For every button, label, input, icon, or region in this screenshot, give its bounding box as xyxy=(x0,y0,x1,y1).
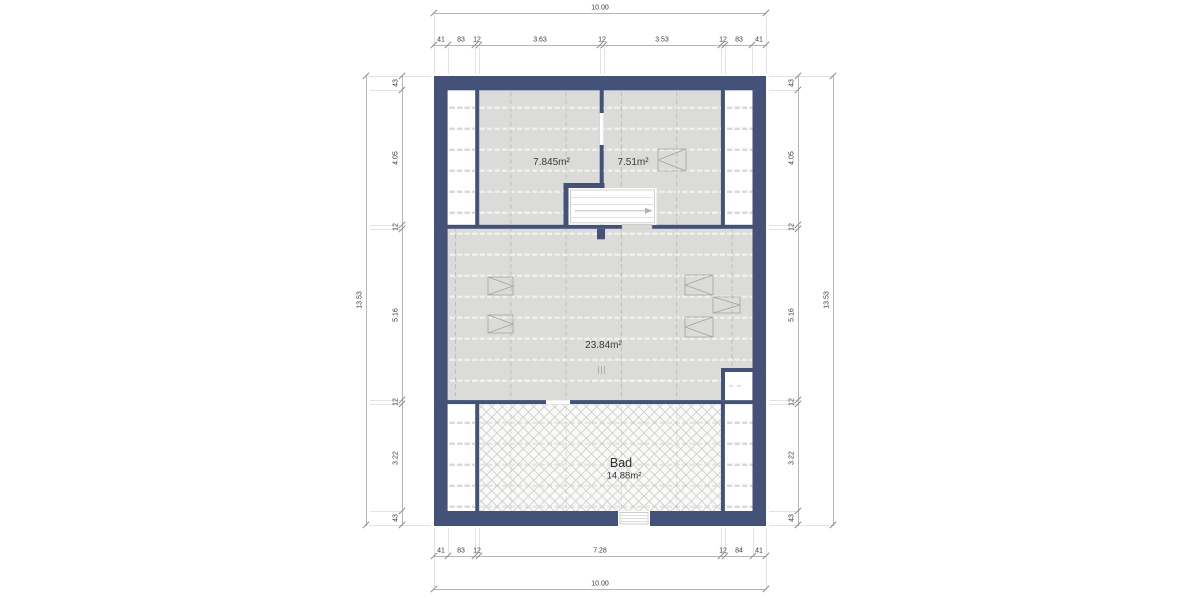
dimension-line xyxy=(434,589,766,590)
extension-line xyxy=(604,47,605,74)
extension-line xyxy=(752,47,753,74)
extension-line xyxy=(753,528,754,554)
extension-line xyxy=(721,47,722,74)
extension-line xyxy=(370,90,400,91)
dimension-line xyxy=(402,76,403,526)
stairwell-opening xyxy=(622,225,652,229)
dim-label: 13.53 xyxy=(357,291,364,309)
dimension-line xyxy=(798,76,799,526)
knee-strip-bad-left xyxy=(448,404,476,511)
dim-label: 43 xyxy=(789,79,796,87)
dim-label: 4.05 xyxy=(789,151,796,165)
room-area-label: 14.88m² xyxy=(607,471,642,482)
room-name-label: Bad xyxy=(610,456,632,470)
dim-label: 12 xyxy=(393,398,400,406)
dim-label: 3.63 xyxy=(533,37,547,44)
dim-label: 83 xyxy=(457,37,465,44)
wall-stub xyxy=(597,229,605,240)
dimension-line xyxy=(833,76,834,526)
extension-line xyxy=(769,76,835,77)
dim-label: 5.16 xyxy=(393,308,400,322)
dim-label: 41 xyxy=(755,37,763,44)
dim-label: 41 xyxy=(755,548,763,555)
room-area-label: 23.84m² xyxy=(585,340,622,351)
extension-line xyxy=(600,47,601,74)
room-area-label: 7.51m² xyxy=(617,157,649,168)
extension-line xyxy=(479,47,480,74)
floor-plan-sheet: 7.845m² 7.51m² 23.84m² Bad 14.88m² xyxy=(0,0,1200,600)
dim-label: 12 xyxy=(789,398,796,406)
dim-label: 43 xyxy=(393,514,400,522)
extension-line xyxy=(725,47,726,74)
dim-label: 12 xyxy=(473,548,481,555)
knee-strip-top-left xyxy=(448,90,476,225)
room-area-label: 7.845m² xyxy=(533,157,570,168)
chimney-niche xyxy=(721,368,753,400)
dim-label: 12 xyxy=(473,37,481,44)
dim-label: 43 xyxy=(789,514,796,522)
dim-tick xyxy=(829,521,836,528)
extension-line xyxy=(370,511,400,512)
dim-label: 12 xyxy=(598,37,606,44)
dim-label: 12 xyxy=(789,223,796,231)
dimension-line xyxy=(366,76,367,526)
dim-label: 7.28 xyxy=(593,548,607,555)
extension-line xyxy=(769,525,835,526)
dim-tick xyxy=(762,585,769,592)
dim-label: 3.53 xyxy=(655,37,669,44)
extension-line xyxy=(448,528,449,554)
dim-label: 12 xyxy=(393,223,400,231)
staircase xyxy=(569,188,657,225)
extension-line xyxy=(448,47,449,74)
dim-label: 83 xyxy=(457,548,465,555)
dim-label: 10.00 xyxy=(591,581,609,588)
floor-plan: 7.845m² 7.51m² 23.84m² Bad 14.88m² xyxy=(434,76,766,526)
room-bad xyxy=(479,404,721,511)
dim-label: 5.16 xyxy=(789,308,796,322)
extension-line xyxy=(434,528,435,587)
room-middle xyxy=(448,229,753,400)
dim-label: 83 xyxy=(735,37,743,44)
knee-strip-bad-right xyxy=(725,404,753,511)
entry-steps xyxy=(620,513,648,525)
extension-line xyxy=(766,528,767,587)
door-opening-partition xyxy=(600,113,604,145)
dimension-line xyxy=(434,13,766,14)
dim-label: 41 xyxy=(437,37,445,44)
knee-strip-top-right xyxy=(725,90,753,225)
dim-label: 10.00 xyxy=(591,5,609,12)
dim-label: 43 xyxy=(393,79,400,87)
dim-label: 12 xyxy=(719,548,727,555)
dim-label: 4.05 xyxy=(393,151,400,165)
dim-label: 3.22 xyxy=(789,451,796,465)
dim-label: 3.22 xyxy=(393,451,400,465)
extension-line xyxy=(475,47,476,74)
dim-label: 41 xyxy=(437,548,445,555)
door-opening-bad xyxy=(546,400,570,404)
dim-label: 13.53 xyxy=(824,291,831,309)
dim-label: 84 xyxy=(735,548,743,555)
dimension-line xyxy=(434,556,766,557)
dim-label: 12 xyxy=(719,37,727,44)
